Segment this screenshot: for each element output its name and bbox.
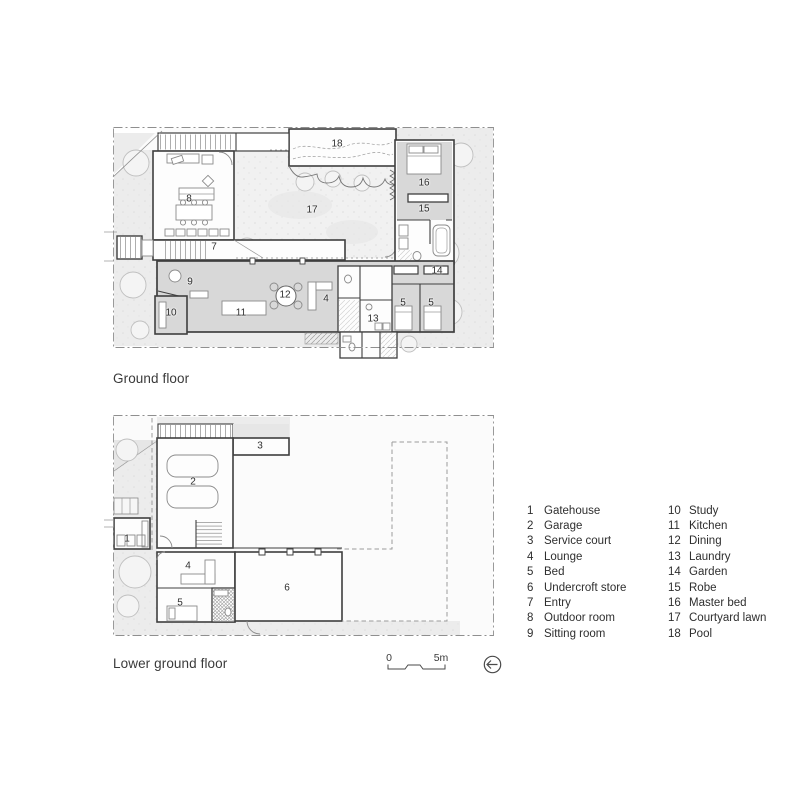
ground-floor-plan-drawing — [104, 128, 494, 359]
floor-plan-sheet: Ground floor Lower ground floor 18171615… — [0, 0, 800, 800]
lower-ground-floor-plan-drawing — [104, 416, 494, 636]
plan-linework — [0, 0, 800, 800]
scale-bar — [388, 665, 445, 670]
north-arrow-icon — [484, 656, 500, 672]
